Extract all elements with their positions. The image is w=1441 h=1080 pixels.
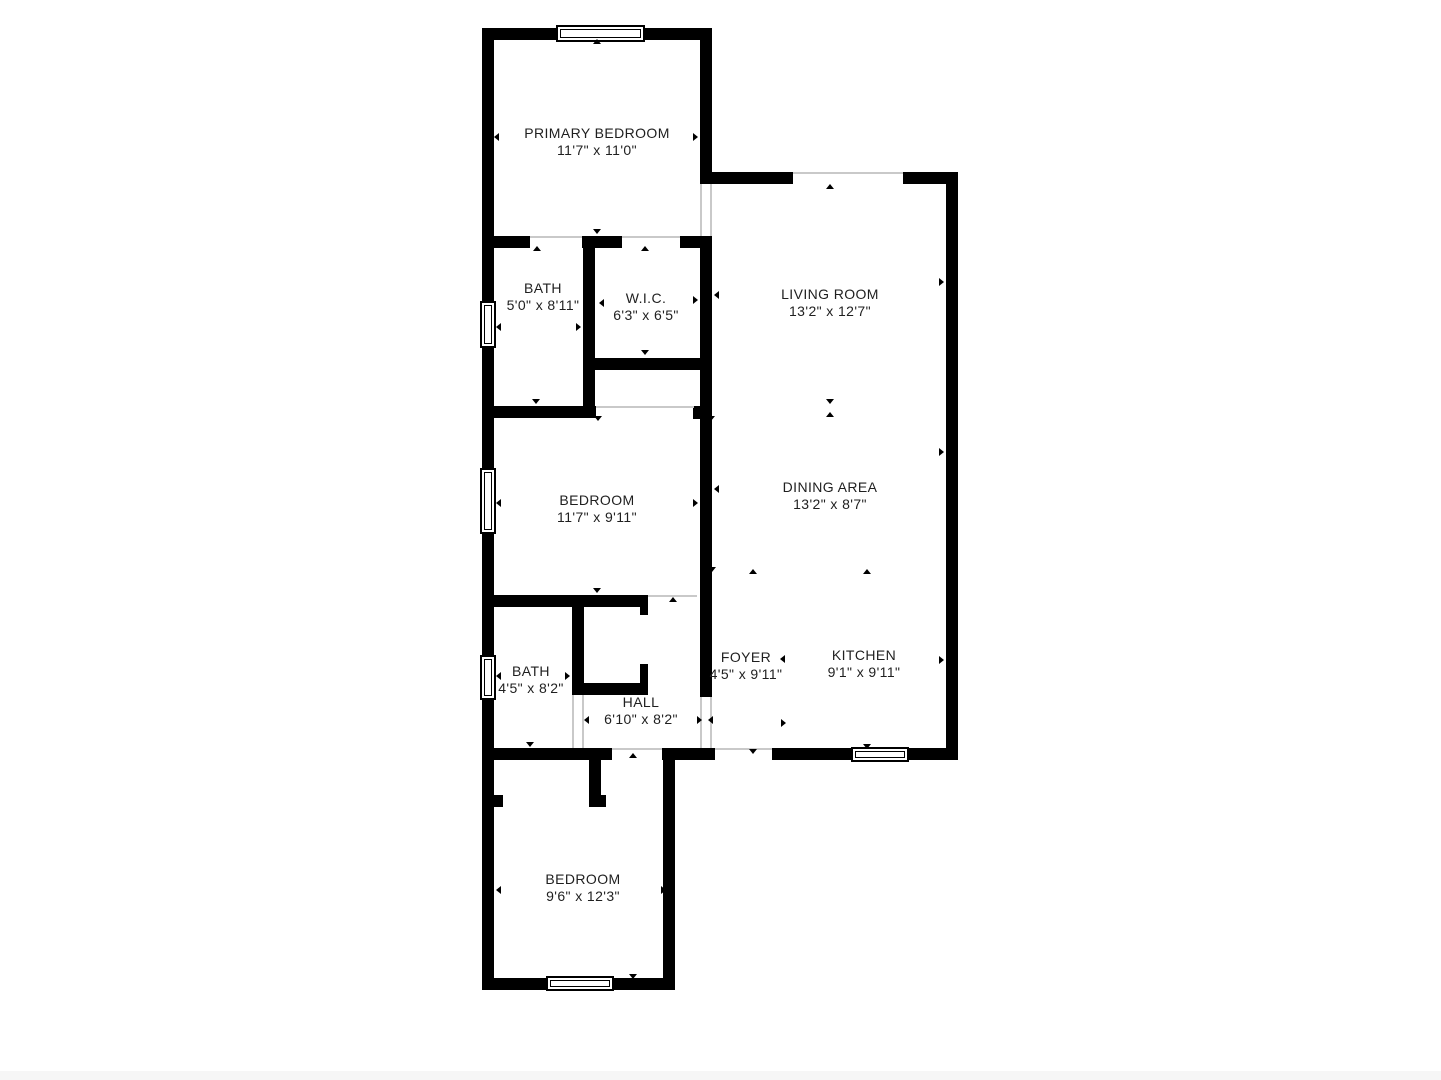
dimension-arrow [826,399,834,404]
dimension-arrow [693,296,698,304]
dimension-arrow [496,886,501,894]
window [480,655,496,700]
wall [613,978,675,990]
room-name: LIVING ROOM [781,286,879,303]
dimension-arrow [708,716,713,724]
dimension-arrow [714,291,719,299]
floor-plan: PRIMARY BEDROOM 11'7" x 11'0" BATH 5'0" … [0,0,1441,1080]
dimension-arrow [826,184,834,189]
door-opening [710,184,712,236]
wall [494,795,503,807]
room-dimensions: 9'6" x 12'3" [545,888,620,905]
dimension-arrow [697,716,702,724]
room-dimensions: 6'3" x 6'5" [613,307,679,324]
wall [589,760,601,797]
dimension-arrow [939,448,944,456]
room-dimensions: 9'1" x 9'11" [828,664,901,681]
dimension-arrow [669,749,677,754]
wall [909,748,958,760]
room-label-foyer: FOYER 4'5" x 9'11" [710,649,783,683]
room-label-kitchen: KITCHEN 9'1" x 9'11" [828,647,901,681]
dimension-arrow [533,246,541,251]
room-label-living-room: LIVING ROOM 13'2" x 12'7" [781,286,879,320]
room-dimensions: 6'10" x 8'2" [604,711,678,728]
dimension-arrow [749,569,757,574]
dimension-arrow [594,416,602,421]
wall [482,699,494,990]
room-dimensions: 13'2" x 12'7" [781,303,879,320]
room-label-bath-2: BATH 4'5" x 8'2" [498,663,564,697]
dimension-arrow [939,278,944,286]
dimension-arrow [584,716,589,724]
window [480,301,496,348]
wall [640,664,648,695]
wall [482,978,547,990]
wall [572,599,584,695]
dimension-arrow [826,412,834,417]
room-name: PRIMARY BEDROOM [524,125,670,142]
wall [700,172,793,184]
door-opening [715,748,772,750]
room-dimensions: 13'2" x 8'7" [783,496,878,513]
door-opening [612,748,662,750]
dimension-arrow [749,749,757,754]
dimension-arrow [565,672,570,680]
dimension-arrow [576,323,581,331]
door-opening [700,184,702,236]
room-name: BEDROOM [545,871,620,888]
room-name: KITCHEN [828,647,901,664]
door-opening [793,172,903,174]
room-label-dining-area: DINING AREA 13'2" x 8'7" [783,479,878,513]
dimension-arrow [496,323,501,331]
dimension-arrow [863,569,871,574]
dimension-arrow [781,719,786,727]
dimension-arrow [641,246,649,251]
wall [700,236,712,697]
door-opening [596,406,694,408]
dimension-arrow [526,742,534,747]
dimension-arrow [661,886,666,894]
room-name: FOYER [710,649,783,666]
wall [663,748,675,990]
room-name: W.I.C. [613,290,679,307]
wall [700,28,712,184]
dimension-arrow [707,416,715,421]
dimension-arrow [714,485,719,493]
wall [482,595,648,607]
room-dimensions: 5'0" x 8'11" [507,297,580,314]
dimension-arrow [629,974,637,979]
dimension-arrow [708,567,716,572]
room-label-bath-1: BATH 5'0" x 8'11" [507,280,580,314]
dimension-arrow [939,656,944,664]
dimension-arrow [693,133,698,141]
room-dimensions: 4'5" x 8'2" [498,680,564,697]
wall [482,28,494,302]
door-opening [622,236,680,238]
door-opening [572,695,574,748]
room-dimensions: 11'7" x 9'11" [557,509,637,526]
wall [772,748,852,760]
wall [482,748,612,760]
room-label-bedroom-3: BEDROOM 9'6" x 12'3" [545,871,620,905]
room-label-wic: W.I.C. 6'3" x 6'5" [613,290,679,324]
room-name: BATH [507,280,580,297]
wall [583,358,712,370]
dimension-arrow [669,597,677,602]
wall [589,795,606,807]
room-dimensions: 11'7" x 11'0" [524,142,670,159]
window [851,747,909,762]
dimension-arrow [863,744,871,749]
wall [482,406,596,418]
wall [640,607,648,615]
wall [946,172,958,760]
room-label-hall: HALL 6'10" x 8'2" [604,694,678,728]
window [480,468,496,534]
room-label-primary-bedroom: PRIMARY BEDROOM 11'7" x 11'0" [524,125,670,159]
wall [693,406,700,419]
dimension-arrow [693,499,698,507]
room-name: DINING AREA [783,479,878,496]
window [546,976,614,991]
room-name: HALL [604,694,678,711]
dimension-arrow [528,601,536,606]
dimension-arrow [593,588,601,593]
dimension-arrow [532,399,540,404]
dimension-arrow [496,499,501,507]
wall [583,236,595,418]
dimension-arrow [629,753,637,758]
room-dimensions: 4'5" x 9'11" [710,666,783,683]
room-name: BEDROOM [557,492,637,509]
dimension-arrow [494,133,499,141]
door-opening [530,236,582,238]
wall [482,236,530,248]
bottom-gray-strip [0,1071,1441,1080]
dimension-arrow [593,229,601,234]
dimension-arrow [641,350,649,355]
room-name: BATH [498,663,564,680]
room-label-bedroom-2: BEDROOM 11'7" x 9'11" [557,492,637,526]
dimension-arrow [599,299,604,307]
dimension-arrow [593,39,601,44]
